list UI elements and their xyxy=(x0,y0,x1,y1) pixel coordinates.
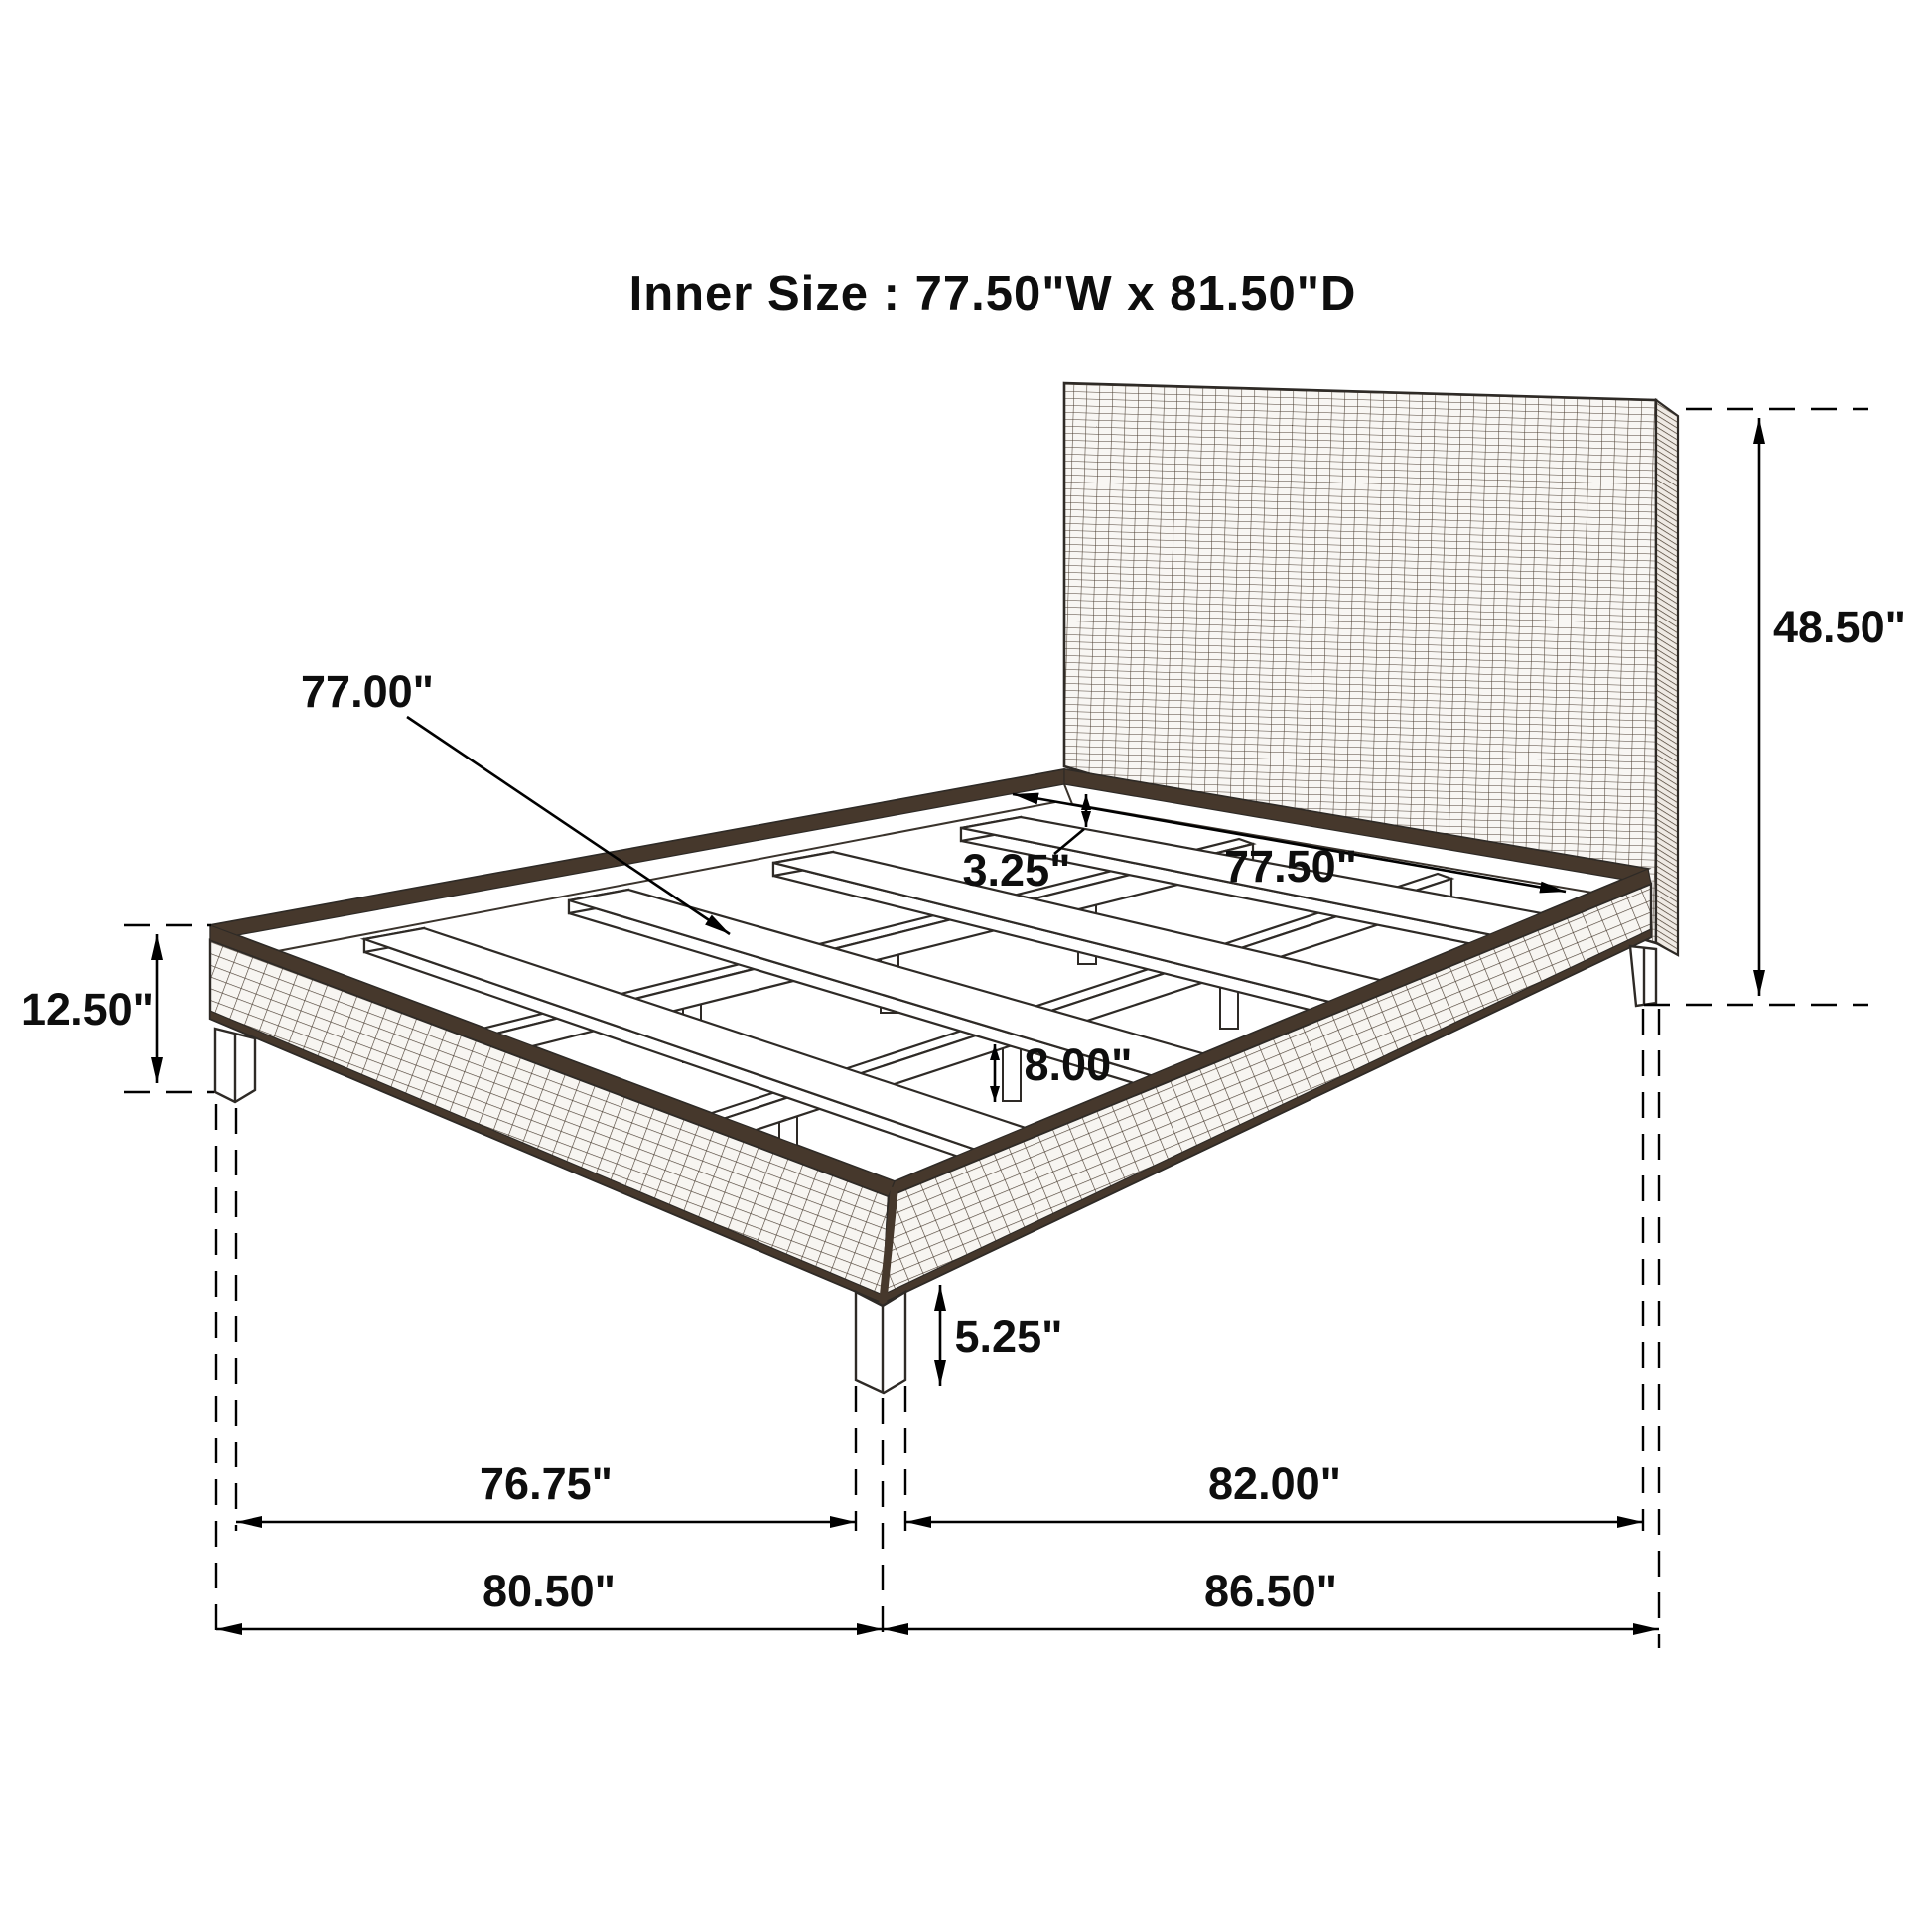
dim-headboard-height: 48.50" xyxy=(1644,409,1906,1005)
diagram-canvas: Inner Size : 77.50"W x 81.50"D xyxy=(0,0,1932,1932)
dim-label-overall-depth: 86.50" xyxy=(1204,1566,1337,1616)
page-title: Inner Size : 77.50"W x 81.50"D xyxy=(629,267,1357,321)
dim-label-slat-length: 77.00" xyxy=(301,666,434,717)
front-leg xyxy=(856,1292,905,1393)
dim-label-slat-recess: 3.25" xyxy=(963,845,1071,896)
dim-label-frame-height: 12.50" xyxy=(21,984,154,1035)
dim-label-slat-clearance: 8.00" xyxy=(1025,1039,1133,1090)
dim-label-headboard-height: 48.50" xyxy=(1773,602,1906,652)
dim-label-side-leg-span: 82.00" xyxy=(1208,1458,1341,1509)
dim-label-front-leg-span: 76.75" xyxy=(480,1458,613,1509)
headboard-side-edge xyxy=(1656,400,1678,955)
dim-frame-height: 12.50" xyxy=(21,925,214,1092)
dim-leg-height: 5.25" xyxy=(940,1285,1062,1386)
dim-label-overall-width: 80.50" xyxy=(483,1566,616,1616)
dim-label-inner-width: 77.50" xyxy=(1224,841,1357,892)
dim-label-leg-height: 5.25" xyxy=(955,1311,1063,1362)
